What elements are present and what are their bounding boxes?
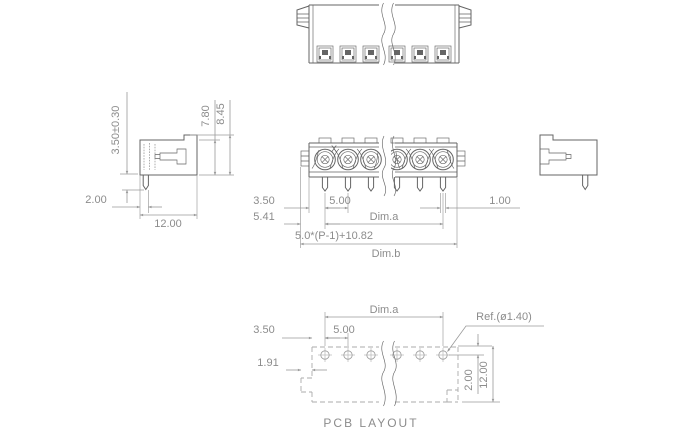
clamp-mark: [417, 50, 423, 55]
right-side-body-outline: [540, 135, 597, 175]
pcb-dim-hole-to-edge: 2.00: [463, 369, 475, 390]
dim-pin-length: 3.50±0.30: [110, 106, 122, 155]
left-side-view: 3.50±0.30 7.80 8.45 2.00 12.00: [85, 92, 234, 230]
drill-hole: [413, 348, 427, 362]
right-side-clamp-glyph: [540, 149, 571, 164]
pcb-hole-diameter-ref: Ref.(ø1.40): [476, 311, 532, 323]
drill-hole: [436, 348, 450, 362]
right-side-view: [540, 135, 597, 190]
screw-slot: [322, 157, 328, 163]
dim-flange-to-pin: 5.41: [253, 211, 274, 223]
pcb-dim-flange-offset: 1.91: [257, 357, 278, 369]
clamp-tab: [342, 138, 354, 143]
left-side-dimensions: 3.50±0.30 7.80 8.45 2.00 12.00: [85, 92, 234, 230]
solder-pin: [440, 177, 445, 191]
dim-pitch: 5.00: [329, 195, 350, 207]
clamp-tab: [414, 138, 426, 143]
clamp-mark: [394, 50, 400, 55]
dim-pin-width: 1.00: [489, 195, 510, 207]
drill-hole: [318, 348, 332, 362]
clamp-mark: [368, 50, 374, 55]
screw-slot: [440, 157, 446, 163]
top-view-left-flange: [297, 6, 309, 28]
connector-dimension-drawing: X 3.50 5.00 1.00 5.41 Dim.a 5.0*(P-1)+10…: [0, 0, 680, 440]
pcb-dimensions: Dim.a 5.00 3.50 1.91 Ref.(ø1.40) 2.00 12…: [253, 304, 544, 402]
top-view-right-flange: [459, 6, 471, 28]
pcb-break-line: [382, 341, 385, 406]
view-title: PCB LAYOUT: [323, 416, 418, 430]
drill-hole: [341, 348, 355, 362]
dim-pin-to-face: 2.00: [85, 194, 106, 206]
top-view: [297, 3, 471, 65]
dim-overall-height: 8.45: [215, 103, 227, 124]
pcb-dim-hole-span-label: Dim.a: [370, 304, 400, 316]
drill-hole: [364, 348, 378, 362]
solder-pin: [417, 177, 422, 191]
clamp-tab: [365, 138, 377, 143]
pcb-dim-pitch: 5.00: [333, 324, 354, 336]
polarity-mark: X: [331, 144, 337, 154]
screw-terminal: [410, 149, 431, 170]
clamp-tab: [319, 138, 331, 143]
front-view-left-screw-boss: [301, 151, 309, 166]
solder-pin: [345, 177, 350, 191]
pcb-dim-edge-to-hole: 3.50: [253, 324, 274, 336]
screw-slot: [417, 157, 423, 163]
left-side-clamp-glyph: [155, 149, 186, 164]
pcb-dim-outline-depth: 12.00: [478, 361, 490, 389]
screw-slot: [345, 157, 351, 163]
screw-terminal: [433, 149, 454, 170]
pcb-layout-view: Dim.a 5.00 3.50 1.91 Ref.(ø1.40) 2.00 12…: [253, 304, 544, 430]
solder-pin: [322, 177, 327, 191]
dim-pin-span-label: Dim.a: [370, 211, 400, 223]
screw-slot: [368, 157, 374, 163]
solder-pin: [394, 177, 399, 191]
dim-body-height: 7.80: [200, 105, 212, 126]
clamp-mark: [345, 50, 351, 55]
drill-hole: [390, 348, 404, 362]
clamp-tab: [437, 138, 449, 143]
body-marking-print: [144, 143, 155, 171]
left-side-body-outline: [140, 135, 197, 175]
screw-terminal: [338, 149, 359, 170]
front-view-right-screw-boss: [457, 151, 465, 166]
clamp-mark: [322, 50, 328, 55]
solder-pin: [368, 177, 373, 191]
front-view-break-mask: [383, 137, 391, 195]
left-side-pin: [143, 175, 148, 190]
top-view-break-mask: [384, 4, 393, 64]
front-view: X 3.50 5.00 1.00 5.41 Dim.a 5.0*(P-1)+10…: [253, 136, 520, 260]
right-side-pin: [583, 175, 588, 190]
screw-terminal: [361, 149, 382, 170]
dim-body-depth: 12.00: [154, 218, 182, 230]
dim-overall-label: Dim.b: [372, 248, 401, 260]
technical-drawing-sheet: X 3.50 5.00 1.00 5.41 Dim.a 5.0*(P-1)+10…: [0, 0, 680, 440]
dim-edge-to-pin: 3.50: [253, 195, 274, 207]
clamp-mark: [440, 50, 446, 55]
dim-overall-formula: 5.0*(P-1)+10.82: [295, 230, 373, 242]
